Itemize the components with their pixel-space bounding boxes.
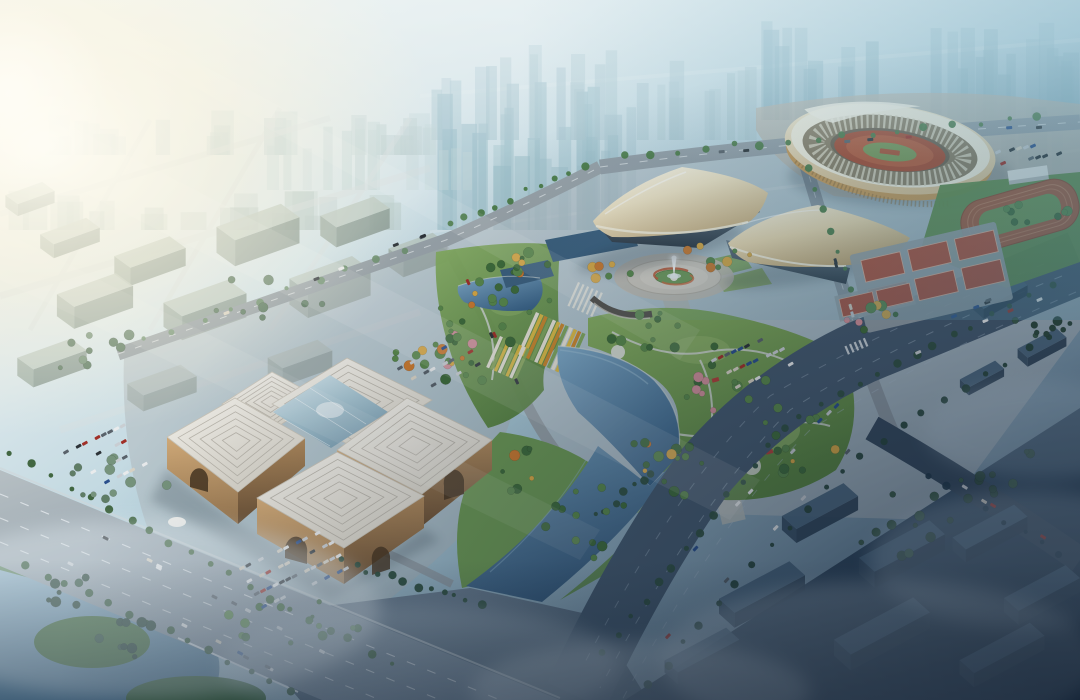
aerial-rendering (0, 0, 1080, 700)
scene-canvas (0, 0, 1080, 700)
atmosphere (0, 0, 1080, 700)
bottom-vignette (0, 560, 1080, 700)
